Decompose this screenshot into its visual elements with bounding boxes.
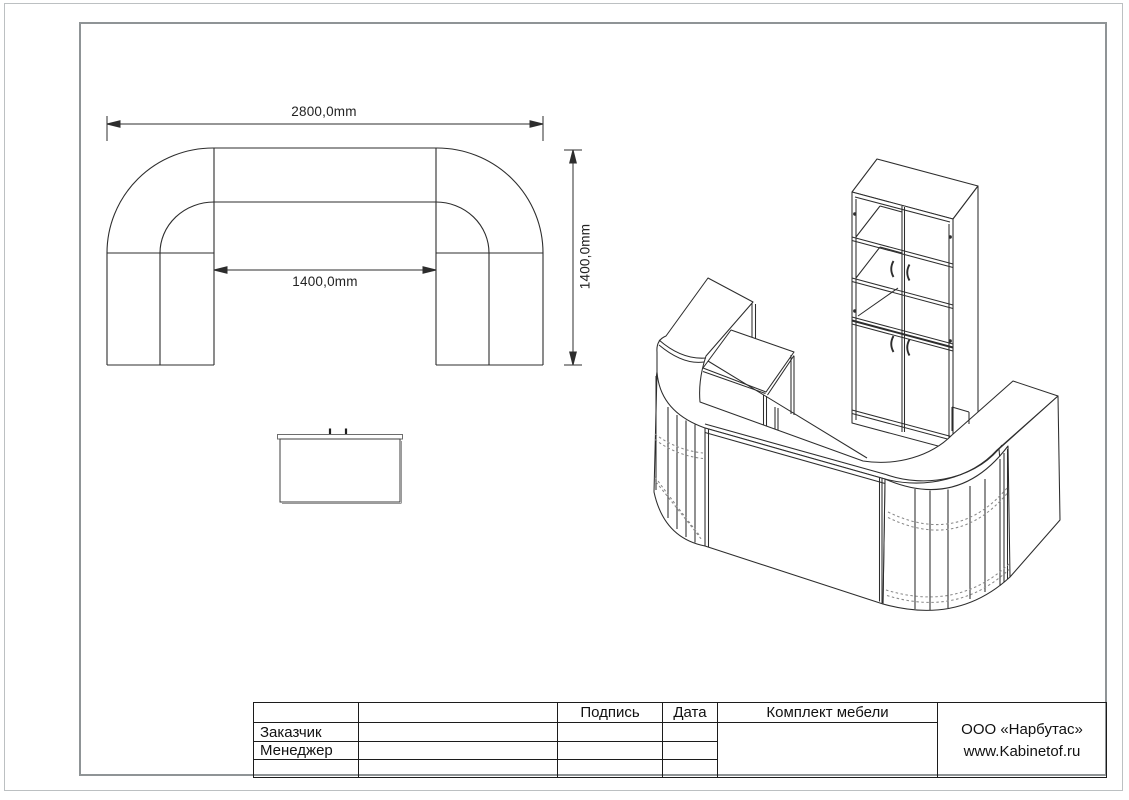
title-block-cell-empty xyxy=(558,760,663,777)
front-view-drawing xyxy=(278,429,403,504)
isometric-view-drawing xyxy=(654,159,1060,610)
customer-date-cell xyxy=(663,723,718,742)
date-header: Дата xyxy=(663,703,718,723)
customer-value-cell xyxy=(359,723,558,742)
company-name: ООО «Нарбутас» xyxy=(961,720,1083,739)
customer-label: Заказчик xyxy=(254,723,359,742)
set-name-body-cell xyxy=(718,723,938,777)
manager-date-cell xyxy=(663,742,718,760)
title-block-cell-empty xyxy=(254,760,359,777)
title-block-table: Подпись Дата Комплект мебели ООО «Нарбут… xyxy=(253,702,1107,778)
set-name-header: Комплект мебели xyxy=(718,703,938,723)
title-block-cell-empty xyxy=(359,703,558,723)
title-block-cell-empty xyxy=(359,760,558,777)
technical-drawing-canvas xyxy=(0,0,1129,800)
customer-signature-cell xyxy=(558,723,663,742)
manager-signature-cell xyxy=(558,742,663,760)
company-website: www.Kabinetof.ru xyxy=(964,742,1081,761)
signature-header: Подпись xyxy=(558,703,663,723)
title-block-cell-empty xyxy=(663,760,718,777)
plan-view-drawing xyxy=(107,148,543,365)
drawing-sheet: 2800,0mm 1400,0mm 1400,0mm Подпись Дата … xyxy=(0,0,1129,800)
dimension-overall-width: 2800,0mm xyxy=(244,104,404,119)
dimension-inner-width: 1400,0mm xyxy=(245,274,405,289)
manager-value-cell xyxy=(359,742,558,760)
dimension-overall-depth: 1400,0mm xyxy=(578,182,593,332)
desk-front-panel xyxy=(705,428,885,604)
manager-label: Менеджер xyxy=(254,742,359,760)
title-block-cell-empty xyxy=(254,703,359,723)
cabinet-isometric xyxy=(852,159,978,450)
company-cell: ООО «Нарбутас» www.Kabinetof.ru xyxy=(938,703,1106,777)
